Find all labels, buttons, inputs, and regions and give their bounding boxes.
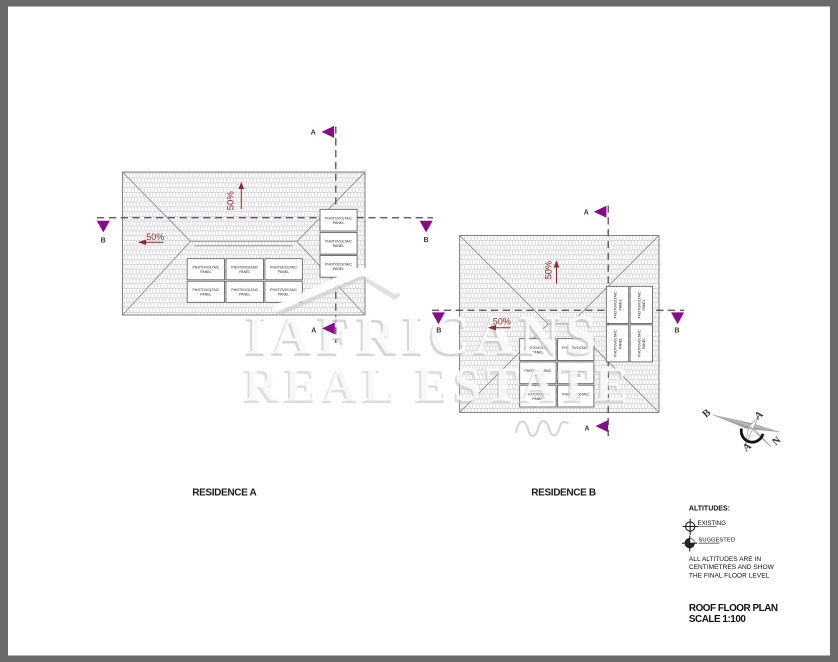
- svg-text:PHOTOVOLTAIC: PHOTOVOLTAIC: [231, 288, 258, 292]
- svg-text:PHOTOVOLTAIC: PHOTOVOLTAIC: [192, 265, 219, 269]
- svg-text:B: B: [436, 328, 441, 335]
- svg-text:IAFRICANS: IAFRICANS: [246, 305, 602, 367]
- svg-text:50%: 50%: [544, 261, 554, 279]
- svg-text:B: B: [674, 328, 679, 335]
- svg-text:PHOTOVOLTAIC: PHOTOVOLTAIC: [614, 291, 618, 318]
- svg-text:A: A: [584, 210, 589, 217]
- svg-text:PHOTOVOLTAIC: PHOTOVOLTAIC: [270, 265, 297, 269]
- svg-text:ALL ALTITUDES ARE IN: ALL ALTITUDES ARE IN: [689, 556, 761, 563]
- svg-text:PANEL: PANEL: [618, 299, 622, 310]
- svg-text:PHOTOVOLTAIC: PHOTOVOLTAIC: [638, 330, 642, 357]
- svg-text:RESIDENCE A: RESIDENCE A: [192, 488, 256, 499]
- svg-text:50%: 50%: [146, 232, 164, 242]
- svg-text:RESIDENCE B: RESIDENCE B: [531, 488, 596, 499]
- svg-text:PANEL: PANEL: [333, 221, 344, 225]
- svg-text:PANEL: PANEL: [333, 267, 344, 271]
- svg-text:PHOTOVOLTAIC: PHOTOVOLTAIC: [614, 330, 618, 357]
- svg-text:PANEL: PANEL: [200, 293, 211, 297]
- svg-text:B: B: [101, 238, 106, 245]
- svg-text:PANEL: PANEL: [239, 293, 250, 297]
- svg-text:SUGGESTED: SUGGESTED: [699, 538, 735, 544]
- svg-text:PANEL: PANEL: [278, 270, 289, 274]
- svg-text:PANEL: PANEL: [200, 270, 211, 274]
- svg-text:A: A: [311, 129, 316, 136]
- svg-text:ROOF FLOOR PLAN: ROOF FLOOR PLAN: [689, 603, 778, 614]
- svg-text:PHOTOVOLTAIC: PHOTOVOLTAIC: [325, 239, 352, 243]
- svg-text:50%: 50%: [226, 191, 237, 211]
- svg-text:CENTIMETRES AND SHOW: CENTIMETRES AND SHOW: [689, 564, 775, 571]
- svg-text:PHOTOVOLTAIC: PHOTOVOLTAIC: [638, 291, 642, 318]
- svg-text:PHOTOVOLTAIC: PHOTOVOLTAIC: [231, 265, 258, 269]
- svg-text:REAL ESTATE: REAL ESTATE: [245, 359, 634, 412]
- svg-text:ALTITUDES:: ALTITUDES:: [689, 505, 730, 512]
- svg-text:PANEL: PANEL: [642, 299, 646, 310]
- svg-text:PANEL: PANEL: [278, 293, 289, 297]
- svg-text:A: A: [311, 327, 316, 334]
- svg-text:PANEL: PANEL: [618, 338, 622, 349]
- svg-text:PANEL: PANEL: [333, 244, 344, 248]
- svg-text:THE FINAL FLOOR LEVEL: THE FINAL FLOOR LEVEL: [689, 572, 770, 579]
- svg-text:PHOTOVOLTAIC: PHOTOVOLTAIC: [192, 288, 219, 292]
- svg-text:A: A: [584, 425, 589, 432]
- svg-text:B: B: [423, 237, 428, 244]
- svg-text:PHOTOVOLTAIC: PHOTOVOLTAIC: [325, 263, 352, 267]
- svg-text:50%: 50%: [493, 316, 511, 326]
- svg-text:EXISTING: EXISTING: [698, 520, 727, 527]
- svg-text:PHOTOVOLTAIC: PHOTOVOLTAIC: [325, 216, 352, 220]
- svg-text:SCALE 1:100: SCALE 1:100: [689, 614, 746, 625]
- svg-text:PANEL: PANEL: [642, 338, 646, 349]
- svg-text:PANEL: PANEL: [239, 270, 250, 274]
- svg-text:PHOTOVOLTAIC: PHOTOVOLTAIC: [270, 288, 297, 292]
